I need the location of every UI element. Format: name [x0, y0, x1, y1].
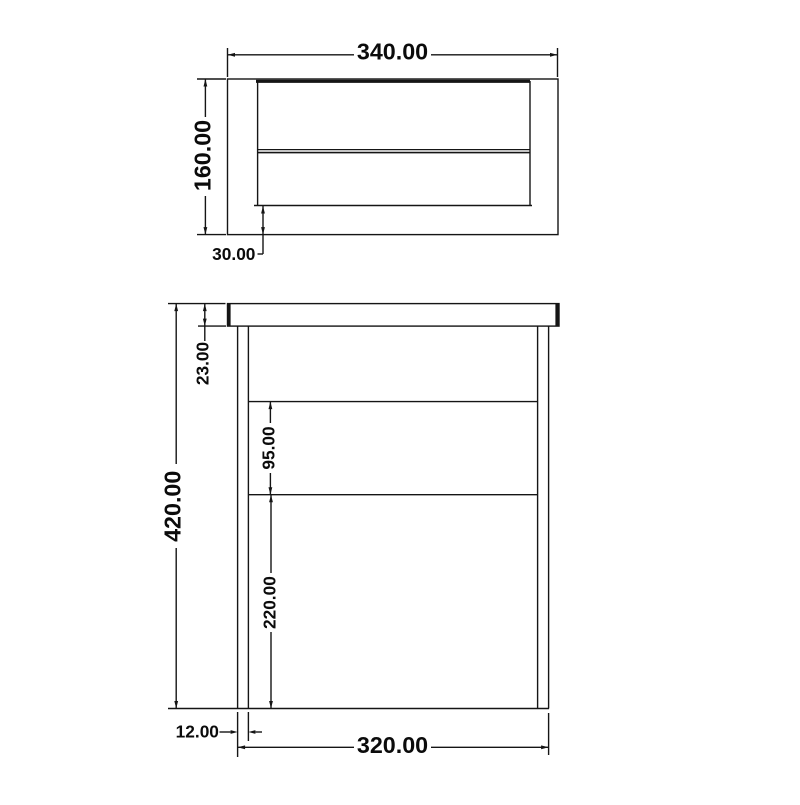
svg-text:23.00: 23.00 — [192, 342, 212, 385]
svg-text:95.00: 95.00 — [259, 426, 279, 469]
svg-text:420.00: 420.00 — [160, 471, 186, 542]
svg-text:160.00: 160.00 — [190, 120, 216, 191]
svg-text:340.00: 340.00 — [357, 39, 428, 65]
svg-text:220.00: 220.00 — [260, 576, 280, 629]
svg-text:30.00: 30.00 — [212, 244, 255, 264]
svg-text:320.00: 320.00 — [357, 732, 428, 758]
svg-text:12.00: 12.00 — [176, 722, 219, 742]
